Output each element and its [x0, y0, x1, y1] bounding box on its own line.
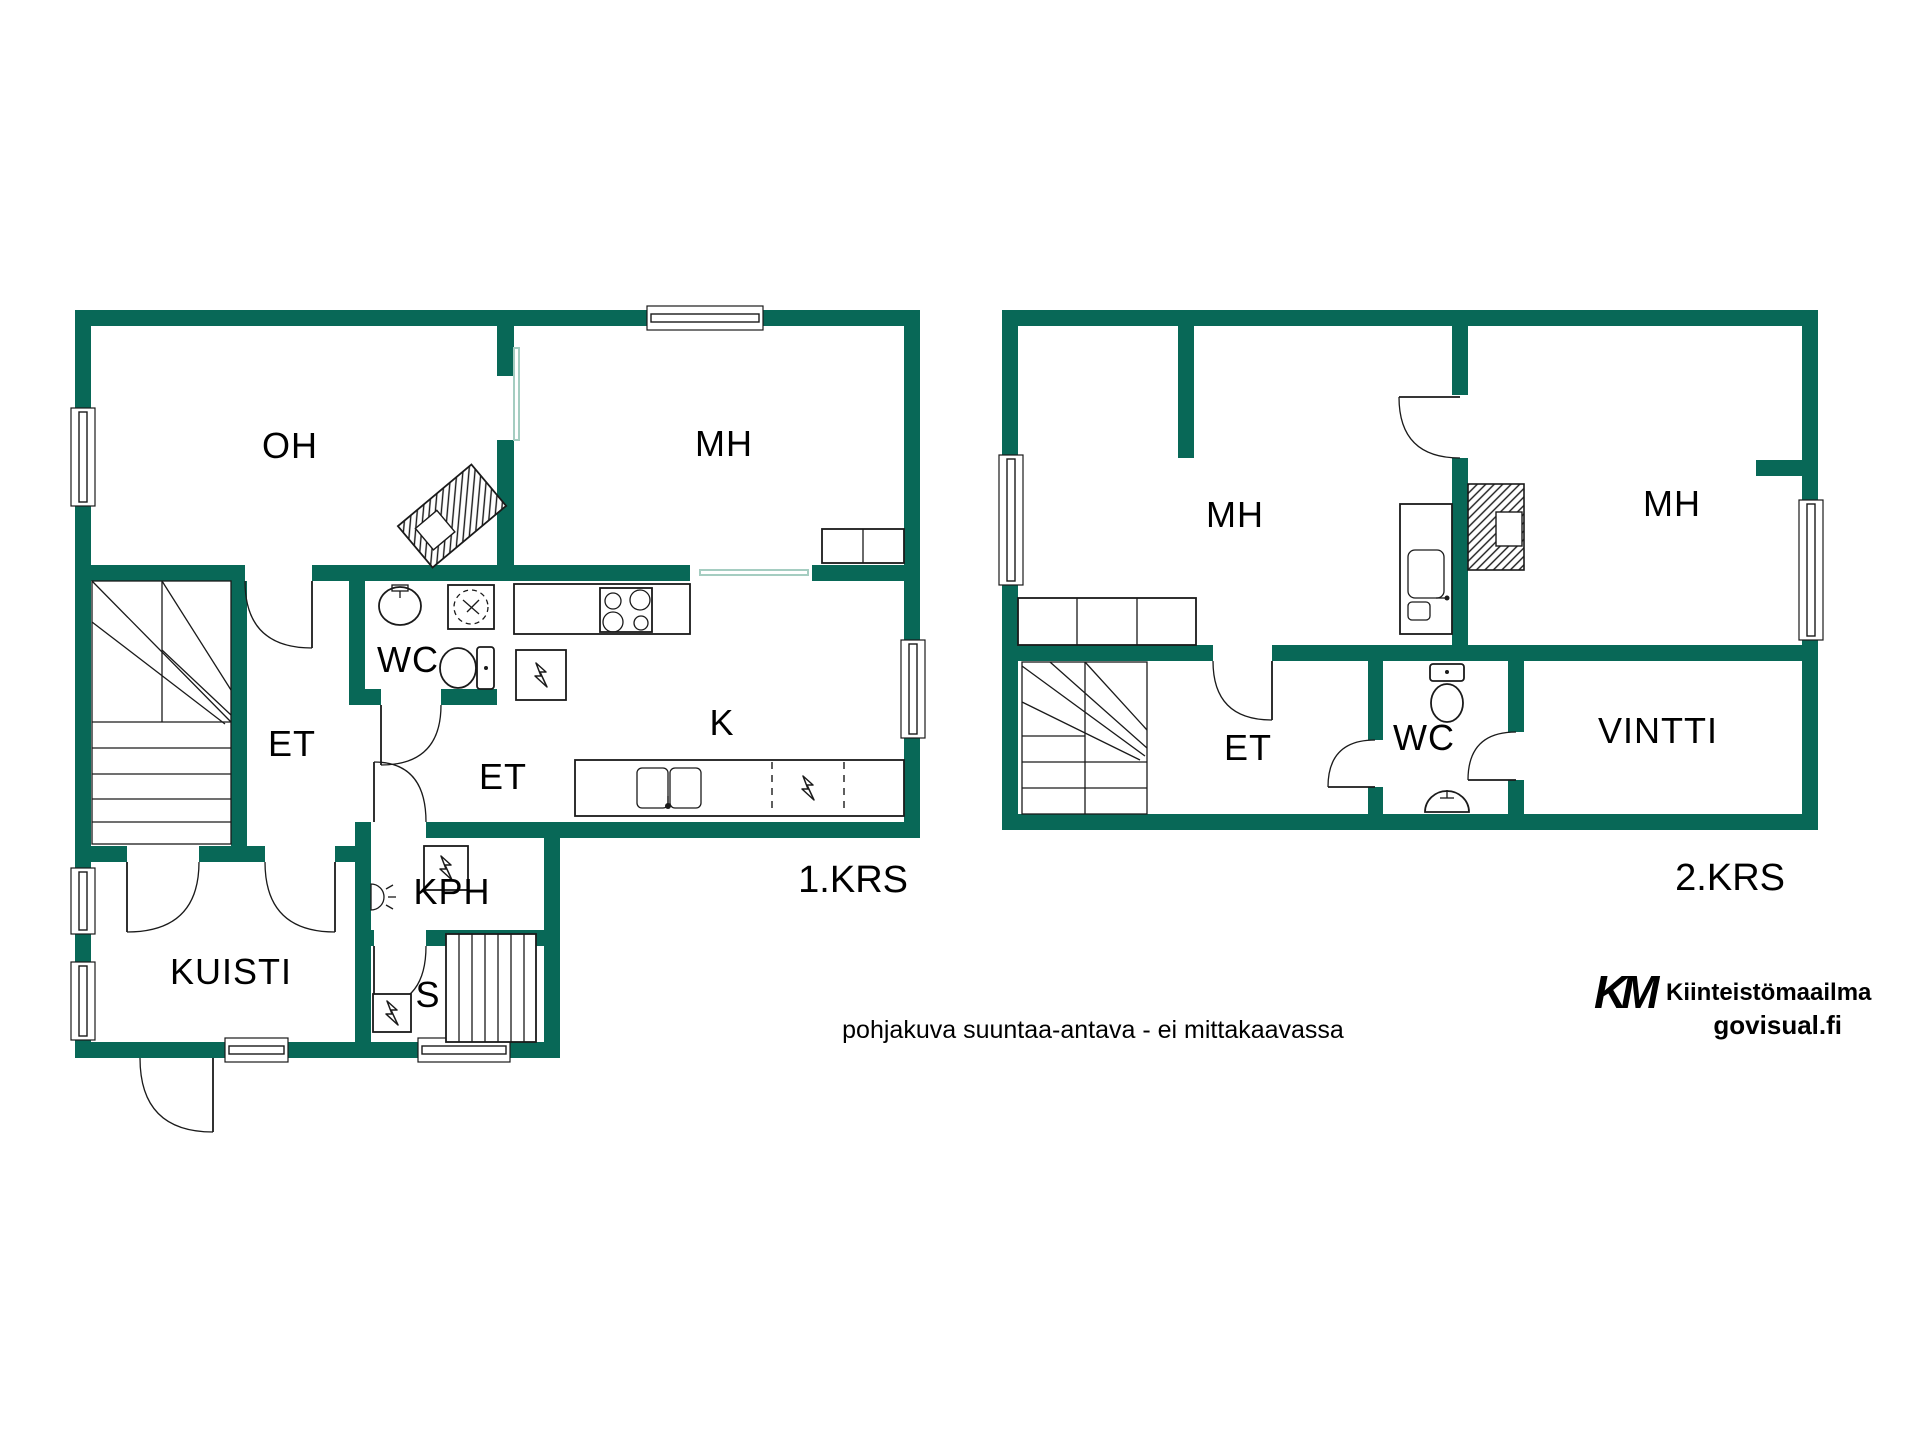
km-logo-m-icon: M: [1621, 966, 1661, 1018]
electric-panel-icon: [516, 650, 566, 700]
window-icon: [647, 306, 763, 330]
floor2-plan: MH MH ET WC VINTTI 2.KRS: [999, 310, 1823, 899]
washbasin-icon: [379, 585, 421, 625]
km-logo-brand: Kiinteistömaailma: [1666, 979, 1872, 1006]
sliding-door-icon: [700, 570, 808, 575]
window-icon: [999, 455, 1023, 585]
door-icon: [245, 581, 312, 648]
door-icon: [1328, 740, 1375, 787]
window-icon: [901, 640, 925, 738]
door-icon: [1213, 661, 1272, 720]
room-label-k: K: [709, 702, 734, 743]
sauna-fixtures: [373, 934, 536, 1042]
washbasin-icon: [1425, 790, 1469, 812]
sauna-heater-icon: [373, 994, 411, 1032]
floor1-sliding-doors: [514, 348, 808, 575]
room-label-mh-left: MH: [1206, 494, 1264, 535]
floor-plan-canvas: OH MH WC ET ET K KPH S KUISTI 1.KRS: [0, 0, 1920, 1440]
door-icon: [381, 705, 441, 765]
floor1-plan: OH MH WC ET ET K KPH S KUISTI 1.KRS: [71, 306, 925, 1132]
sink-cabinet-icon: [1400, 504, 1452, 634]
room-label-wc: WC: [1393, 717, 1455, 758]
stairs-icon: [92, 581, 231, 844]
room-label-wc: WC: [377, 639, 439, 680]
room-label-vintti: VINTTI: [1598, 710, 1718, 751]
kitchen-counter: [514, 584, 690, 634]
room-label-kuisti: KUISTI: [170, 951, 292, 992]
nightstand-icon: [822, 529, 904, 563]
toilet-icon: [440, 647, 494, 689]
lamp-icon: [371, 884, 396, 910]
room-label-mh-right: MH: [1643, 483, 1701, 524]
window-icon: [71, 408, 95, 506]
room-label-oh: OH: [262, 425, 318, 466]
fireplace-icon: [398, 464, 506, 567]
stairs-icon: [1022, 662, 1147, 814]
stove-icon: [600, 588, 652, 632]
door-icon: [265, 862, 335, 932]
sauna-bench-icon: [446, 934, 536, 1042]
fan-icon: [448, 585, 494, 629]
window-icon: [71, 962, 95, 1040]
floor2-name: 2.KRS: [1675, 857, 1785, 899]
room-label-et: ET: [1224, 727, 1272, 768]
watermark-site: govisual.fi: [1713, 1010, 1842, 1040]
wardrobe-icon: [1018, 598, 1196, 645]
room-label-mh: MH: [695, 423, 753, 464]
floor-plan-page: OH MH WC ET ET K KPH S KUISTI 1.KRS: [0, 0, 1920, 1440]
door-icon: [127, 862, 199, 932]
floor1-labels: OH MH WC ET ET K KPH S KUISTI 1.KRS: [170, 423, 908, 1015]
kitchen-island: [575, 760, 904, 816]
chimney-icon: [1468, 484, 1524, 570]
km-logo: K M Kiinteistömaailma govisual.fi: [1594, 966, 1872, 1040]
floor1-name: 1.KRS: [798, 859, 908, 901]
door-icon: [140, 1058, 213, 1132]
room-label-s: S: [415, 974, 440, 1015]
door-icon: [1399, 397, 1460, 458]
disclaimer-text: pohjakuva suuntaa-antava - ei mittakaava…: [842, 1016, 1344, 1044]
window-icon: [225, 1038, 288, 1062]
door-icon: [374, 762, 426, 822]
window-icon: [1799, 500, 1823, 640]
room-label-kph: KPH: [413, 871, 490, 912]
room-label-et1: ET: [268, 723, 316, 764]
door-icon: [1468, 732, 1516, 780]
room-label-et2: ET: [479, 756, 527, 797]
window-icon: [71, 868, 95, 934]
toilet-icon: [1430, 664, 1464, 722]
sliding-door-icon: [514, 348, 519, 440]
